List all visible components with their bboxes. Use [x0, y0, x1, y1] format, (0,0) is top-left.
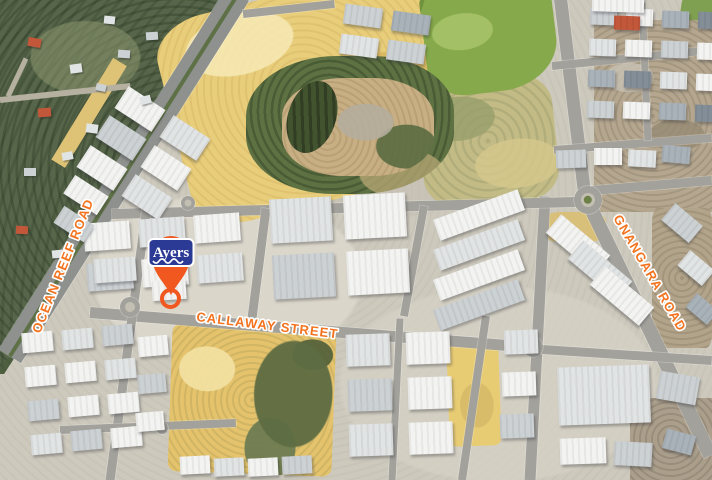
house — [118, 50, 131, 59]
ayers-marker[interactable]: Ayers — [146, 234, 196, 296]
house — [85, 123, 98, 134]
house — [95, 83, 106, 92]
satellite-map[interactable]: OCEAN REEF ROAD CALLAWAY STREET GNANGARA… — [0, 0, 712, 480]
house — [146, 32, 159, 41]
house — [69, 63, 82, 74]
house — [104, 15, 116, 24]
house — [61, 151, 73, 161]
house — [52, 249, 64, 258]
marker-brand-text: Ayers — [153, 245, 190, 261]
house — [27, 37, 41, 48]
house — [16, 226, 29, 235]
house — [24, 168, 36, 176]
house — [38, 107, 52, 117]
houses-layer — [0, 0, 712, 480]
house — [139, 95, 152, 106]
